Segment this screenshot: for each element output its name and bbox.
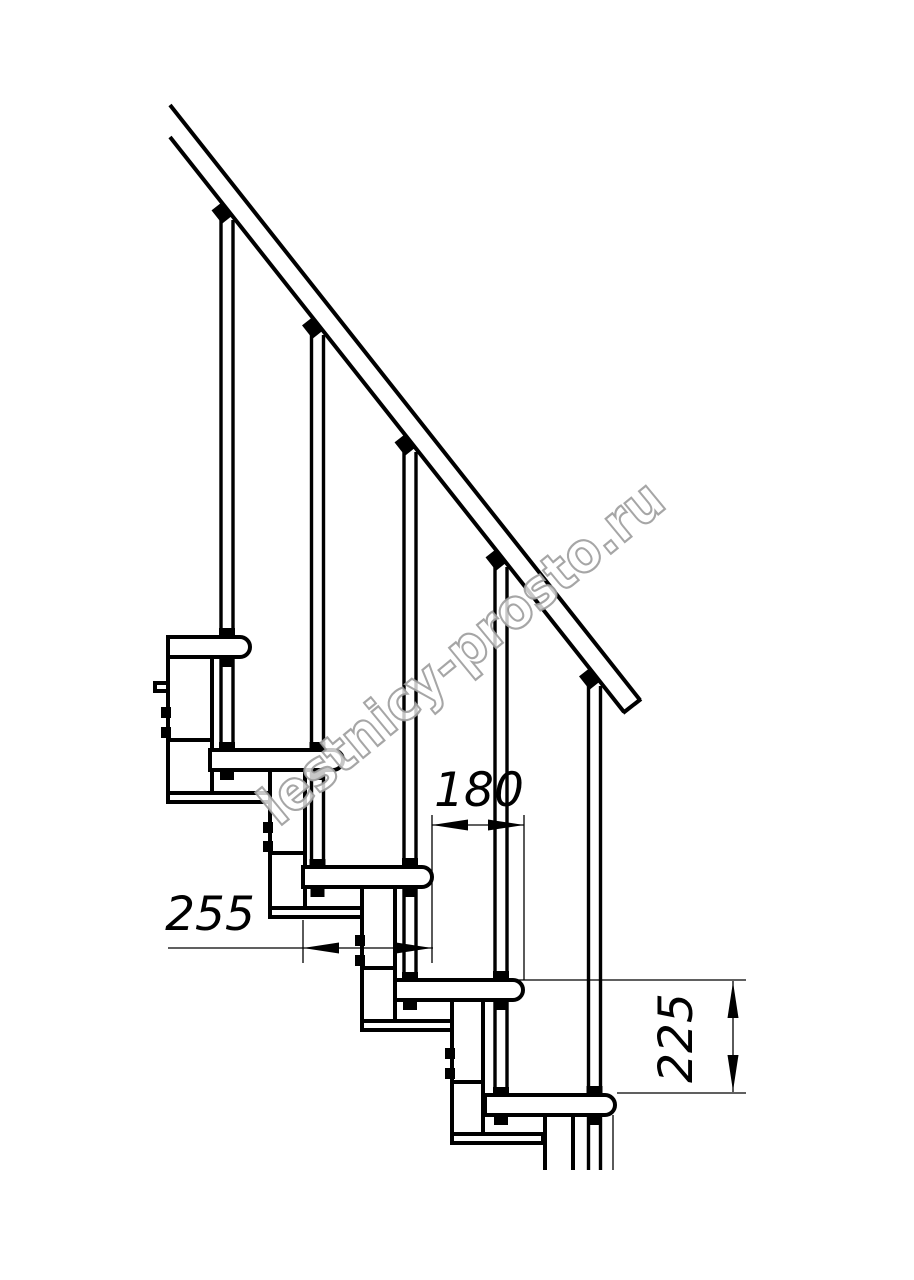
support-plate-5 xyxy=(545,1113,573,1170)
bolt xyxy=(161,707,171,718)
nut xyxy=(403,888,417,897)
tread-4 xyxy=(395,980,523,1000)
nut xyxy=(311,888,325,897)
tread-5 xyxy=(485,1095,615,1115)
bolt xyxy=(263,841,273,852)
nut xyxy=(588,1116,602,1125)
bolt xyxy=(263,822,273,833)
dimension-label-225: 225 xyxy=(649,993,704,1083)
dimension-225: 225 xyxy=(512,980,746,1093)
bolt xyxy=(355,935,365,946)
collar xyxy=(493,1087,509,1095)
dimension-180: 180 xyxy=(432,763,524,980)
collar xyxy=(493,971,509,980)
nut xyxy=(494,1001,508,1010)
bolt xyxy=(161,727,171,738)
nut xyxy=(220,658,234,667)
bolt xyxy=(445,1048,455,1059)
collar xyxy=(310,859,326,867)
collar xyxy=(587,1086,603,1095)
collar xyxy=(402,972,418,980)
dimension-label-255: 255 xyxy=(165,887,255,942)
nut xyxy=(220,771,234,780)
collar xyxy=(219,742,235,750)
drawing-canvas: 180 255 225 lestnicy-prosto.ru xyxy=(0,0,914,1280)
nut xyxy=(403,1001,417,1010)
collar xyxy=(402,858,418,867)
support-plate-1 xyxy=(155,657,270,802)
collar xyxy=(219,628,235,637)
handrail-end-cap xyxy=(623,699,641,713)
staircase-technical-drawing: 180 255 225 lestnicy-prosto.ru xyxy=(0,0,914,1280)
dimension-label-180: 180 xyxy=(434,763,524,818)
base-plate-2 xyxy=(270,908,362,917)
base-plate-4 xyxy=(452,1134,543,1143)
wall-lip xyxy=(155,683,168,691)
tread-1 xyxy=(168,637,250,657)
nut xyxy=(494,1116,508,1125)
bolt xyxy=(445,1068,455,1079)
tread-3 xyxy=(303,867,432,887)
bolt xyxy=(355,955,365,966)
base-plate-3 xyxy=(362,1021,452,1030)
